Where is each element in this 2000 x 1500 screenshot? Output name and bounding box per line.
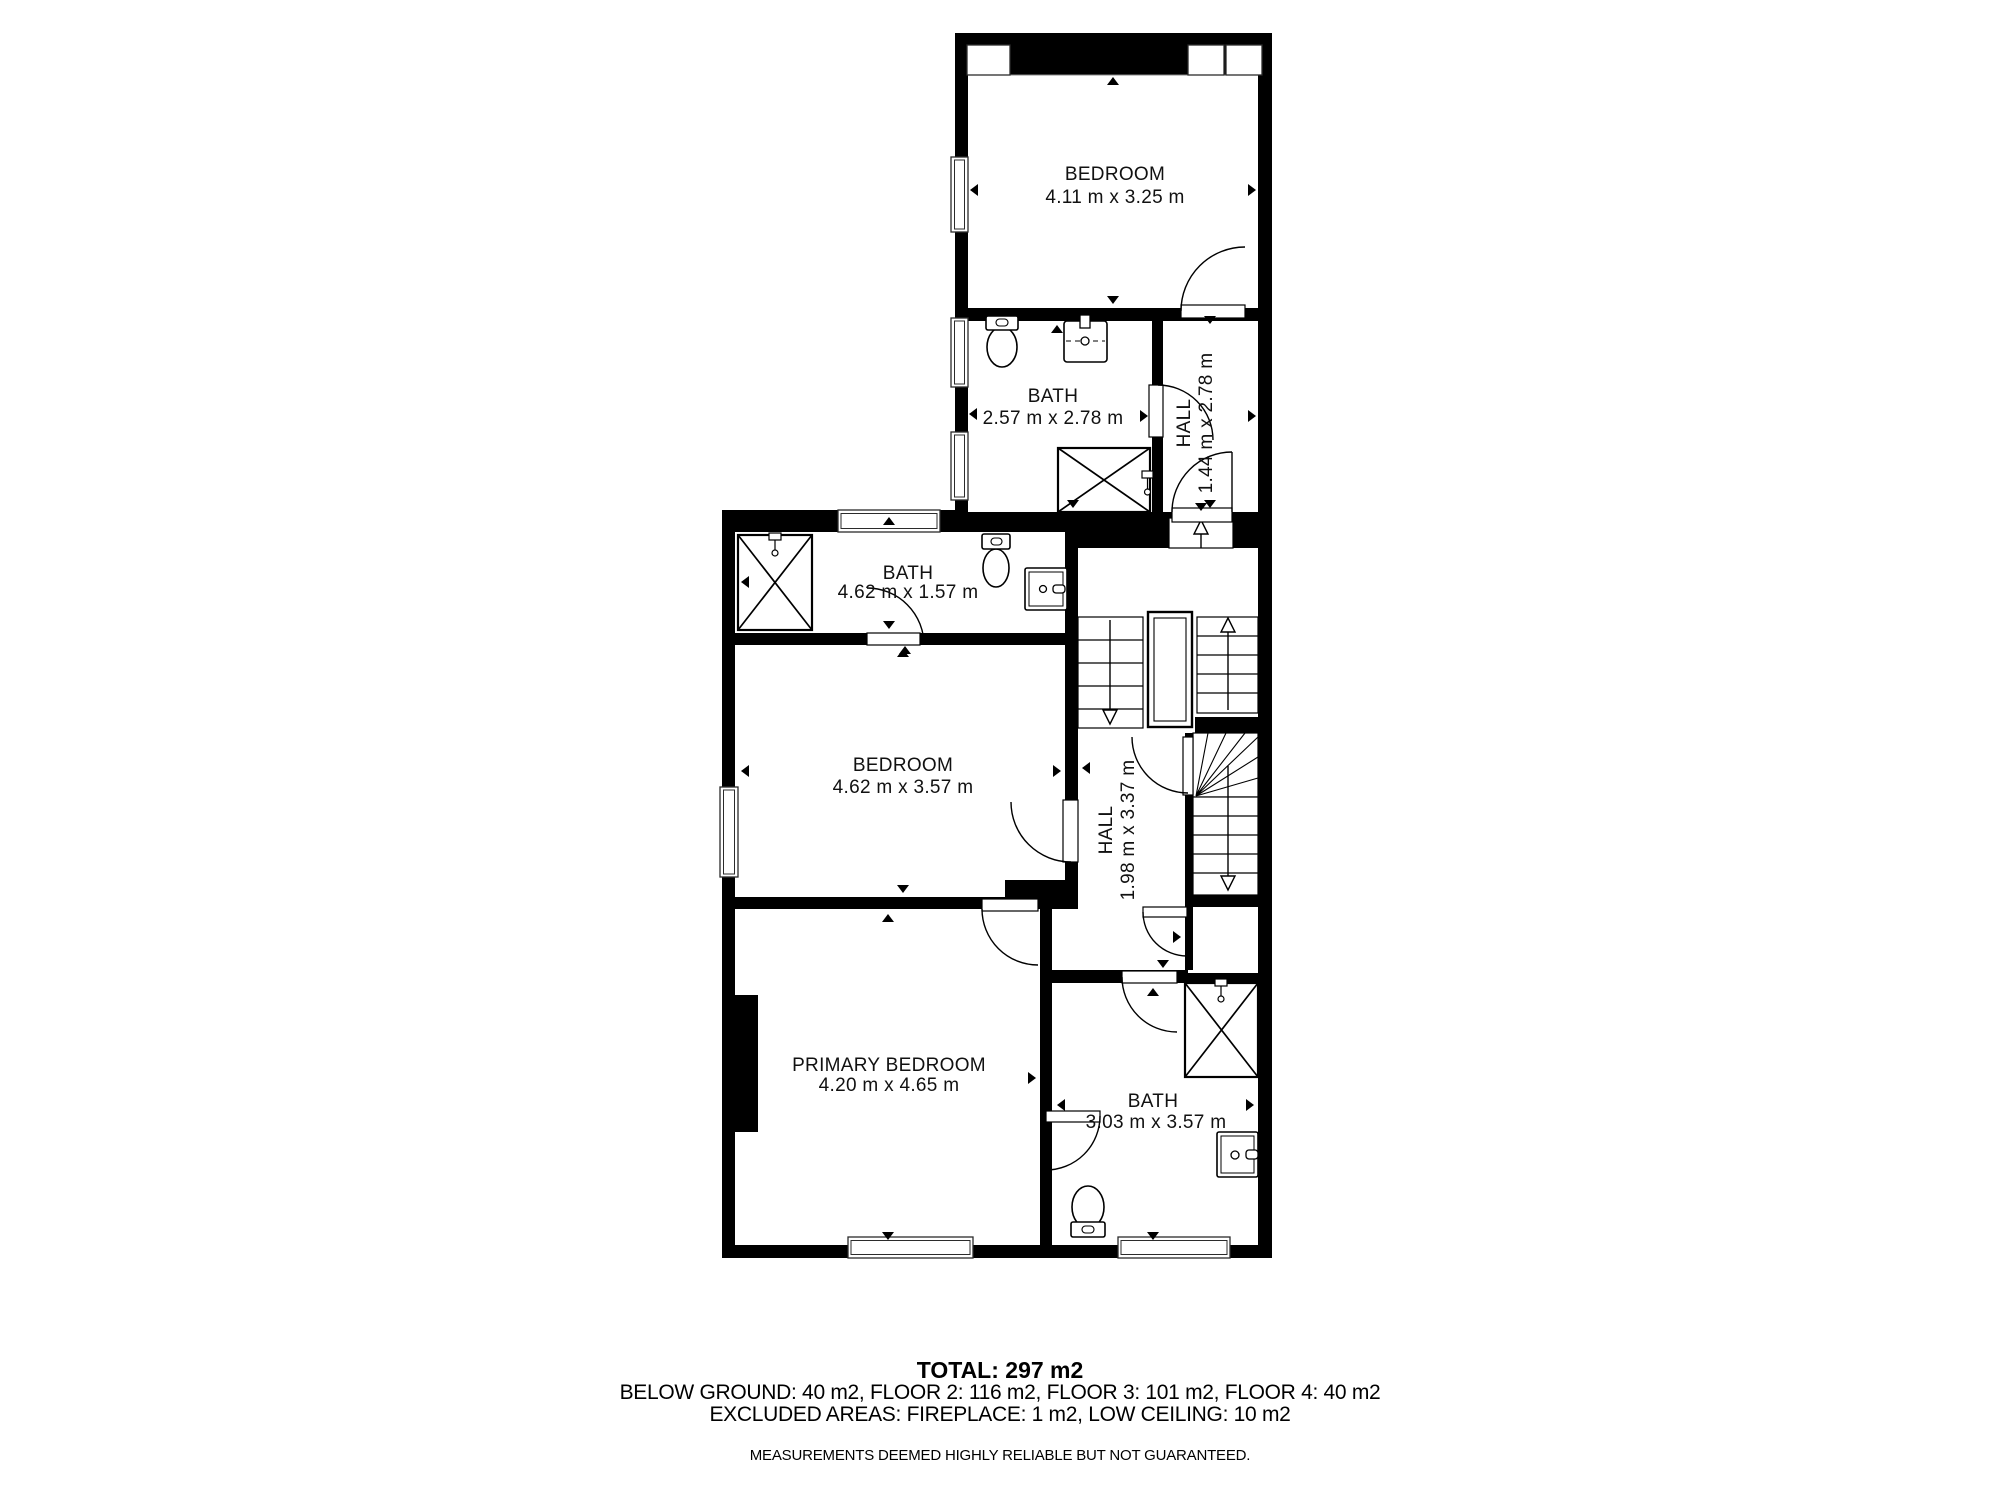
dimension-arrow [1053, 765, 1061, 777]
door-leaf [1183, 737, 1193, 795]
window-icon [1118, 1237, 1230, 1258]
room-label: BEDROOM [1065, 164, 1165, 185]
dimension-arrow [969, 408, 977, 420]
stairs-down-flight-icon [1078, 617, 1143, 728]
door-leaf [1143, 907, 1187, 917]
dimension-arrow [1173, 931, 1181, 943]
fireplace-block [722, 995, 758, 1132]
door-leaf [1172, 508, 1232, 522]
wall [1195, 717, 1258, 733]
wall [1258, 33, 1272, 1258]
dimension-arrow [897, 885, 909, 893]
dimension-arrow [970, 184, 978, 196]
dimension-arrow [882, 914, 894, 922]
wall [1005, 880, 1065, 897]
room-dimensions: 2.57 m x 2.78 m [983, 408, 1124, 429]
door-leaf [867, 633, 920, 645]
room-label: BATH [1128, 1091, 1178, 1112]
sink-icon [1064, 315, 1107, 362]
dimension-arrow [1107, 296, 1119, 304]
door-swing-arc [1181, 247, 1245, 311]
sink-icon [1025, 568, 1067, 610]
dimension-arrow [883, 621, 895, 629]
dimension-arrow [1157, 960, 1169, 968]
stair-void [1148, 612, 1192, 727]
door-swing-arc [1011, 802, 1071, 862]
room-label: BATH [883, 563, 933, 584]
door-leaf [1149, 385, 1163, 437]
door-leaf [982, 899, 1038, 911]
dimension-arrow [1147, 988, 1159, 996]
footer: TOTAL: 297 m2 BELOW GROUND: 40 m2, FLOOR… [0, 1358, 2000, 1464]
door-leaf [1122, 971, 1177, 983]
dimension-arrow [1057, 1099, 1065, 1111]
wall [955, 512, 1078, 532]
room-label: HALL [1096, 806, 1117, 855]
floor-areas-text: BELOW GROUND: 40 m2, FLOOR 2: 116 m2, FL… [0, 1382, 2000, 1404]
toilet-icon [986, 316, 1018, 367]
toilet-icon [982, 534, 1010, 587]
door-leaf [1063, 800, 1078, 862]
room-label: BATH [1028, 386, 1078, 407]
floor-plan-page: BEDROOM 4.11 m x 3.25 m BATH 2.57 m x 2.… [0, 0, 2000, 1500]
sink-icon [1217, 1132, 1258, 1177]
room-dimensions: 4.11 m x 3.25 m [1045, 187, 1184, 208]
toilet-icon [1071, 1186, 1105, 1237]
dimension-arrow [1248, 410, 1256, 422]
wall [1040, 907, 1052, 1245]
room-dimensions: 4.62 m x 1.57 m [838, 582, 979, 603]
window-icon [967, 45, 1010, 75]
wall [1185, 895, 1258, 907]
door-swing-arc [1132, 737, 1188, 793]
window-icon [1188, 45, 1224, 75]
floor-plan: BEDROOM 4.11 m x 3.25 m BATH 2.57 m x 2.… [0, 0, 2000, 1500]
dimension-arrow [1051, 325, 1063, 333]
shower-icon [1185, 979, 1258, 1077]
window-icon [848, 1237, 973, 1258]
window-icon [951, 432, 968, 500]
shower-icon [738, 533, 812, 630]
dimension-arrow [1028, 1072, 1036, 1084]
stairs-winder-icon [1193, 733, 1258, 797]
fixtures [738, 315, 1258, 1237]
room-label: HALL [1174, 399, 1195, 448]
dimension-arrow [1140, 410, 1148, 422]
window-icon [951, 157, 968, 232]
disclaimer-text: MEASUREMENTS DEEMED HIGHLY RELIABLE BUT … [0, 1447, 2000, 1464]
room-dimensions: 3.03 m x 3.57 m [1086, 1112, 1227, 1133]
total-area-text: TOTAL: 297 m2 [0, 1358, 2000, 1382]
room-dimensions: 4.20 m x 4.65 m [819, 1075, 960, 1096]
window-icon [951, 318, 968, 387]
window-icon [1226, 45, 1262, 75]
dimension-arrow [1246, 1099, 1254, 1111]
room-label: PRIMARY BEDROOM [792, 1055, 986, 1076]
door-swing-arc [1143, 912, 1187, 956]
dimension-arrow [1248, 184, 1256, 196]
wall [722, 510, 735, 1258]
door-swing-arc [982, 909, 1038, 965]
room-label: BEDROOM [853, 755, 953, 776]
stairs-up-flight-icon [1197, 617, 1258, 713]
room-dimensions: 1.98 m x 3.37 m [1118, 760, 1139, 901]
dimension-arrow [741, 765, 749, 777]
window-icon [720, 787, 738, 877]
door-swing-arc [1122, 977, 1177, 1032]
room-dimensions: 4.62 m x 3.57 m [833, 777, 974, 798]
dimension-arrow [1107, 77, 1119, 85]
dimension-arrow [1082, 762, 1090, 774]
excluded-areas-text: EXCLUDED AREAS: FIREPLACE: 1 m2, LOW CEI… [0, 1404, 2000, 1426]
room-dimensions: 1.44 m x 2.78 m [1196, 353, 1217, 494]
